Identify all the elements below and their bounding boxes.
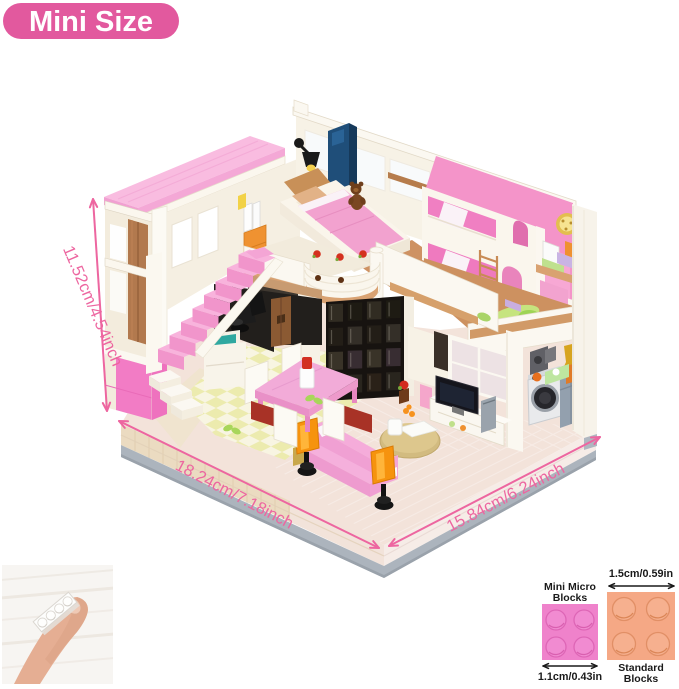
svg-text:Mini Size: Mini Size [29,6,153,38]
svg-text:1.1cm/0.43in: 1.1cm/0.43in [538,671,602,683]
svg-text:Blocks: Blocks [553,592,588,604]
svg-text:1.5cm/0.59in: 1.5cm/0.59in [609,568,673,580]
svg-text:Blocks: Blocks [624,673,659,684]
